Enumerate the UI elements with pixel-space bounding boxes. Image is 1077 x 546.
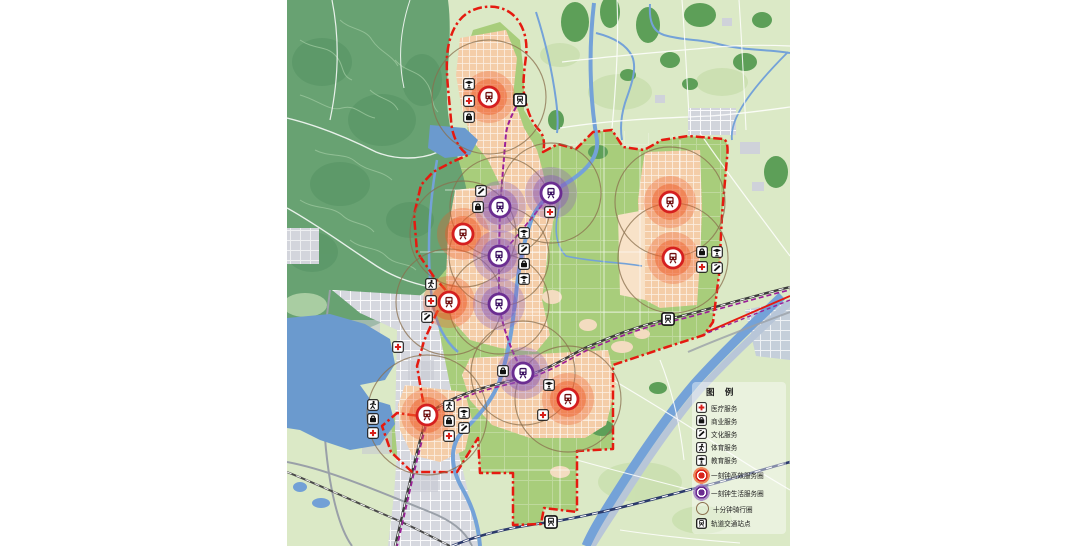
- legend-item-rail-station: 轨道交通站点: [696, 518, 782, 529]
- cultural-icon: [519, 244, 530, 255]
- education-icon: [696, 455, 707, 466]
- red-service-circle-icon: [693, 467, 710, 484]
- train-station-icon: [696, 518, 707, 529]
- page-background: 图 例 医疗服务商业服务文化服务体育服务教育服务一刻钟高效服务圈一刻钟生活服务圈…: [0, 0, 1077, 546]
- education-icon: [519, 274, 530, 285]
- commercial-icon: [697, 247, 708, 258]
- education-icon: [519, 228, 530, 239]
- legend-item-medical: 医疗服务: [696, 402, 782, 413]
- legend-item-life-circle: 一刻钟生活服务圈: [696, 485, 782, 500]
- sports-icon: [444, 401, 455, 412]
- commercial-icon: [519, 259, 530, 270]
- legend-item-label: 轨道交通站点: [711, 518, 751, 528]
- legend-item-label: 文化服务: [711, 429, 737, 439]
- commercial-icon: [498, 366, 509, 377]
- rail-station-icon: [545, 516, 557, 528]
- planning-map: 图 例 医疗服务商业服务文化服务体育服务教育服务一刻钟高效服务圈一刻钟生活服务圈…: [287, 0, 790, 546]
- rail-station-icon: [514, 94, 526, 106]
- legend-item-label: 教育服务: [711, 455, 737, 465]
- medical-cross-icon: [696, 402, 707, 413]
- cultural-icon: [422, 312, 433, 323]
- medical-icon: [393, 342, 404, 353]
- efficient-service-circle-marker: [644, 176, 696, 228]
- medical-icon: [426, 296, 437, 307]
- purple-service-circle-icon: [693, 484, 710, 501]
- commercial-icon: [368, 414, 379, 425]
- commercial-icon: [473, 202, 484, 213]
- legend-item-commercial: 商业服务: [696, 415, 782, 426]
- education-icon: [544, 380, 555, 391]
- medical-icon: [444, 431, 455, 442]
- life-service-circle-marker: [473, 230, 525, 282]
- legend-items: 医疗服务商业服务文化服务体育服务教育服务一刻钟高效服务圈一刻钟生活服务圈十分钟骑…: [696, 402, 782, 529]
- legend-item-efficient-circle: 一刻钟高效服务圈: [696, 468, 782, 483]
- sports-icon: [426, 279, 437, 290]
- cultural-icon: [459, 423, 470, 434]
- commercial-icon: [444, 416, 455, 427]
- medical-icon: [368, 428, 379, 439]
- medical-icon: [697, 262, 708, 273]
- shopping-bag-icon: [696, 415, 707, 426]
- sports-icon: [368, 400, 379, 411]
- legend-title: 图 例: [706, 386, 782, 398]
- education-icon: [712, 247, 723, 258]
- legend-item-label: 医疗服务: [711, 403, 737, 413]
- medical-icon: [464, 96, 475, 107]
- legend-item-label: 商业服务: [711, 416, 737, 426]
- cycling-ring-icon: [696, 502, 709, 515]
- sports-icon: [696, 442, 707, 453]
- legend-item-cultural: 文化服务: [696, 428, 782, 439]
- map-legend: 图 例 医疗服务商业服务文化服务体育服务教育服务一刻钟高效服务圈一刻钟生活服务圈…: [692, 382, 786, 534]
- commercial-icon: [464, 112, 475, 123]
- legend-item-label: 一刻钟生活服务圈: [711, 488, 764, 498]
- medical-icon: [545, 207, 556, 218]
- cultural-icon: [712, 263, 723, 274]
- legend-item-sports: 体育服务: [696, 442, 782, 453]
- legend-item-cycling-circle: 十分钟骑行圈: [696, 502, 782, 515]
- education-icon: [464, 79, 475, 90]
- rail-station-icon: [662, 313, 674, 325]
- life-service-circle-marker: [473, 278, 525, 330]
- legend-item-label: 一刻钟高效服务圈: [711, 470, 764, 480]
- legend-item-education: 教育服务: [696, 455, 782, 466]
- medical-icon: [538, 410, 549, 421]
- education-icon: [459, 408, 470, 419]
- legend-item-label: 体育服务: [711, 442, 737, 452]
- legend-item-label: 十分钟骑行圈: [713, 504, 753, 514]
- efficient-service-circle-marker: [647, 232, 699, 284]
- cultural-icon: [476, 186, 487, 197]
- culture-icon: [696, 428, 707, 439]
